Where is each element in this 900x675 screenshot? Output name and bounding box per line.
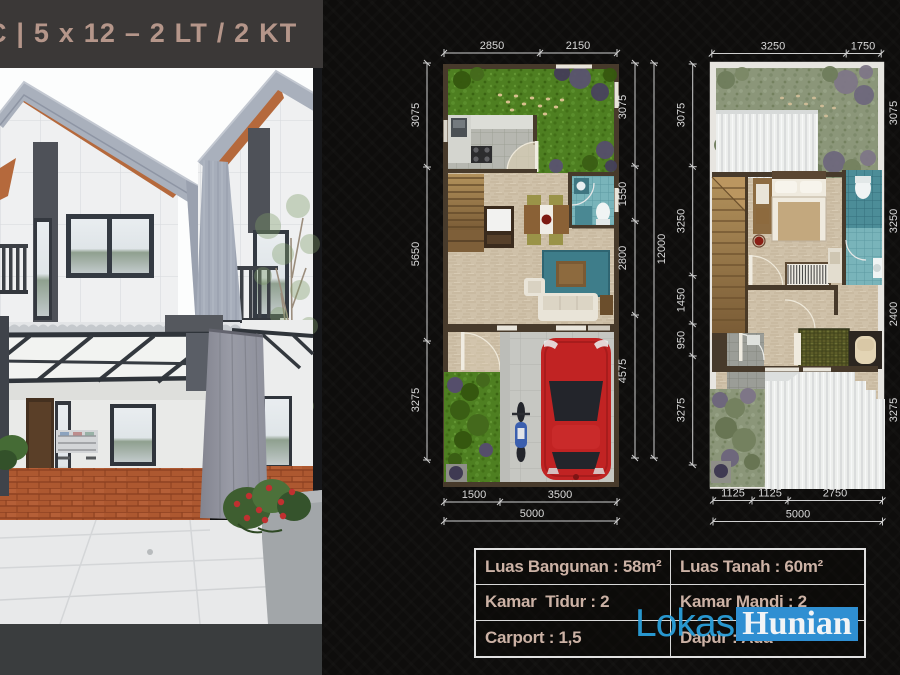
svg-text:3275: 3275 [676,398,688,422]
svg-text:3075: 3075 [676,103,688,127]
svg-text:950: 950 [676,331,688,349]
svg-text:3075: 3075 [617,95,629,119]
svg-text:1500: 1500 [462,489,486,501]
svg-text:3075: 3075 [888,101,900,125]
svg-text:3275: 3275 [888,398,900,422]
svg-text:5000: 5000 [520,508,544,520]
svg-text:2800: 2800 [617,246,629,270]
svg-text:2400: 2400 [888,302,900,326]
svg-text:1125: 1125 [758,488,782,500]
svg-text:1125: 1125 [721,488,745,500]
svg-text:3275: 3275 [410,388,422,412]
svg-text:3250: 3250 [676,209,688,233]
svg-text:3250: 3250 [761,41,785,53]
svg-text:12000: 12000 [656,234,668,265]
svg-text:2750: 2750 [823,488,847,500]
svg-text:3075: 3075 [410,103,422,127]
svg-text:2850: 2850 [480,40,504,52]
svg-text:3250: 3250 [888,209,900,233]
svg-text:5000: 5000 [786,509,810,521]
svg-text:2150: 2150 [566,40,590,52]
svg-text:1750: 1750 [851,41,875,53]
svg-text:3500: 3500 [548,489,572,501]
svg-text:5650: 5650 [410,242,422,266]
svg-text:4575: 4575 [617,359,629,383]
svg-text:1550: 1550 [617,182,629,206]
svg-text:1450: 1450 [676,288,688,312]
